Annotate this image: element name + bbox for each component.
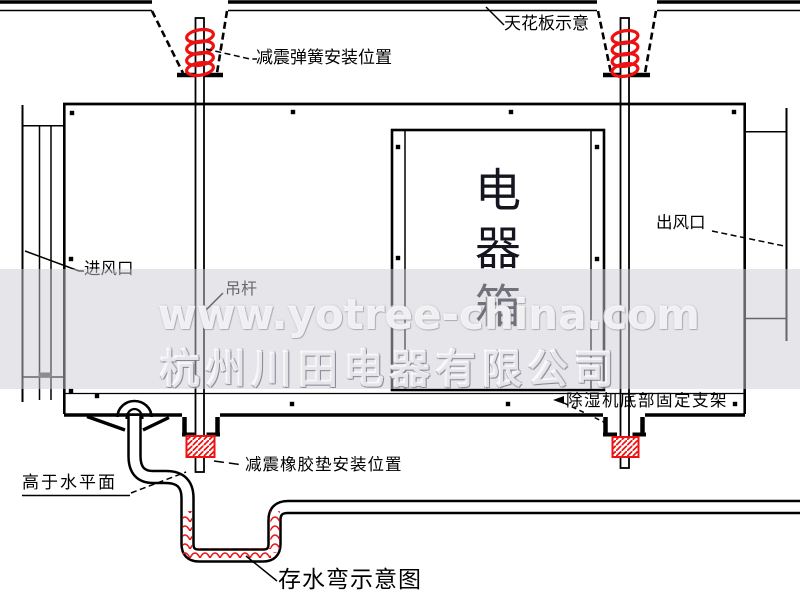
leader-arrow [553,396,564,404]
diagram-line-art [0,0,800,600]
label-bottom-bracket: 除湿机底部固定支架 [566,392,728,410]
label-hanger-rod: 吊杆 [225,281,257,299]
label-ceiling: 天花板示意 [504,15,589,34]
inlet-damper [39,373,53,378]
label-above-water: 高于水平面 [22,474,117,493]
installation-diagram: 减震弹簧安装位置 天花板示意 出风口 进风口 吊杆 除湿机底部固定支架 减震橡胶… [0,0,800,600]
air-outlet-duct [745,108,788,341]
drain-trap-pipe [135,416,800,556]
rubber-pad-left [187,436,215,457]
label-air-outlet: 出风口 [656,214,706,232]
label-air-inlet: 进风口 [84,260,134,278]
label-rubber-pad: 减震橡胶垫安装位置 [245,456,403,474]
electrical-box-label: 电器箱 [461,166,527,340]
ceiling-slab [0,2,800,11]
air-inlet-duct [22,105,64,402]
trap-water [183,511,280,560]
label-shock-spring: 减震弹簧安装位置 [256,49,392,68]
rubber-pad-right [613,437,639,457]
label-water-trap: 存水弯示意图 [278,567,422,592]
hanger-rod-left [196,18,205,472]
